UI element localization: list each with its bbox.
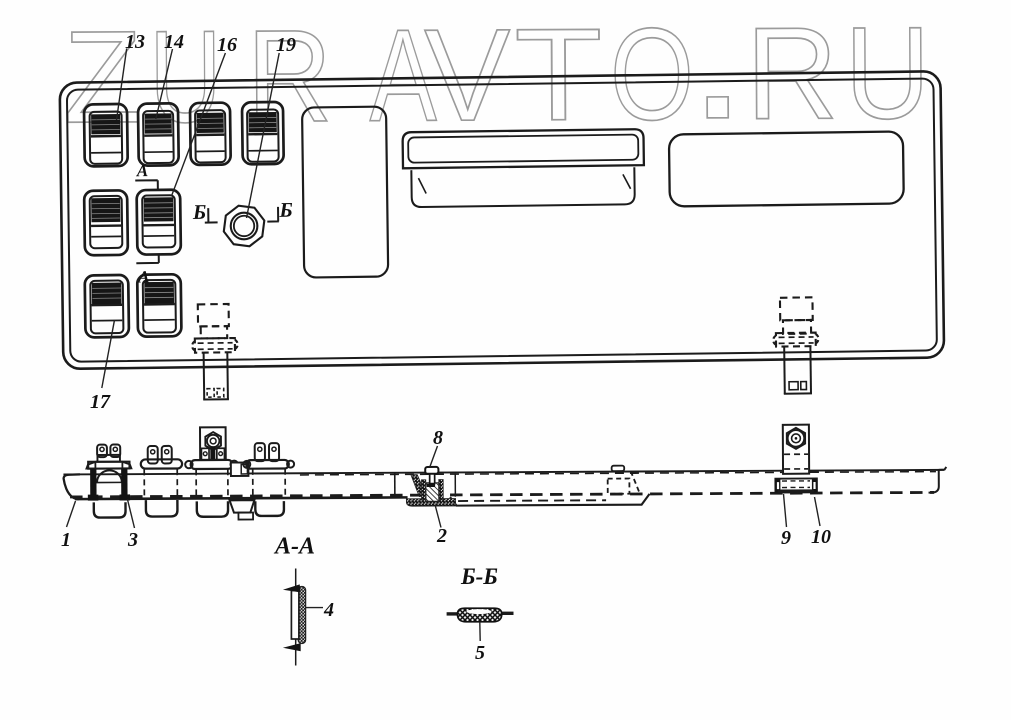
svg-text:А-А: А-А [273,534,315,560]
svg-text:16: 16 [217,34,237,56]
svg-text:5: 5 [475,642,485,664]
svg-text:А: А [137,267,150,286]
svg-text:T: T [514,0,603,147]
svg-text:19: 19 [276,34,296,56]
svg-text:Б: Б [278,198,293,222]
svg-text:9: 9 [781,527,791,549]
svg-text:2: 2 [436,525,447,547]
svg-text:17: 17 [90,391,111,413]
svg-text:3: 3 [127,529,138,551]
svg-text:Б-Б: Б-Б [460,564,498,589]
svg-text:V: V [424,1,511,148]
svg-text:13: 13 [125,31,145,53]
svg-text:4: 4 [323,599,334,621]
svg-text:А: А [136,161,149,180]
svg-text:8: 8 [433,427,443,449]
svg-text:14: 14 [164,31,184,53]
svg-text:Б: Б [192,200,207,224]
svg-text:10: 10 [811,526,831,548]
svg-text:1: 1 [61,529,71,551]
